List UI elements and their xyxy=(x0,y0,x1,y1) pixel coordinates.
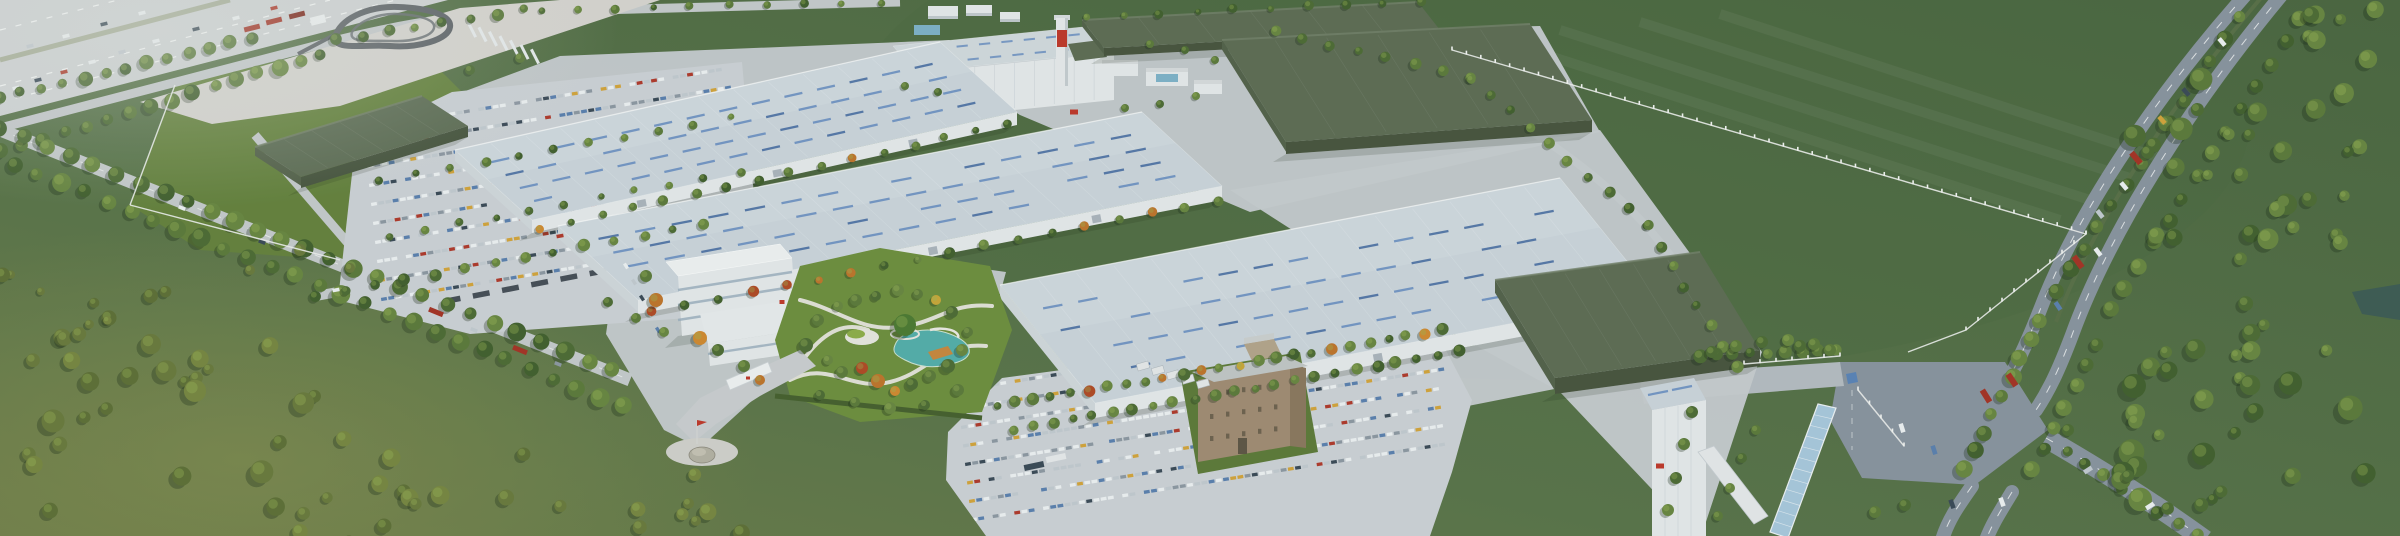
campus-scene-canvas xyxy=(0,0,2400,536)
aerial-campus-rendering xyxy=(0,0,2400,536)
atmosphere-overlay xyxy=(0,0,2400,536)
